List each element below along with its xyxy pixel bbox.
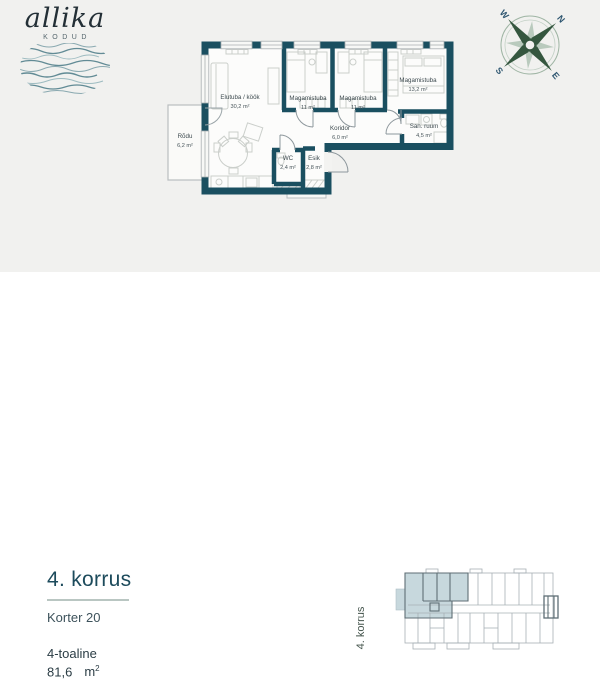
room-label-rodu: Rõdu xyxy=(178,133,193,140)
floorplan-drawing: Elutuba / köök 30,2 m² Magamistuba 11 m²… xyxy=(150,28,470,210)
room-label-elutuba: Elutuba / köök xyxy=(220,94,260,101)
title-divider xyxy=(47,599,129,601)
room-label-koridor: Koridor xyxy=(330,125,350,132)
room-area-magamistuba3: 13,2 m² xyxy=(409,87,428,93)
total-area-value: 81,6 xyxy=(47,664,72,679)
room-label-magamistuba1: Magamistuba xyxy=(289,95,327,102)
compass-label-s: S xyxy=(494,65,506,76)
total-area-unit: m xyxy=(84,664,95,679)
compass-label-w: W xyxy=(498,8,511,21)
total-area-sup: 2 xyxy=(95,664,99,673)
compass-label-e: E xyxy=(550,70,562,81)
brand-name: allika xyxy=(10,4,120,34)
compass-icon: N E S W xyxy=(485,0,575,90)
room-label-sanruum: San. ruum xyxy=(410,123,439,130)
room-area-elutuba: 30,2 m² xyxy=(231,104,250,110)
room-area-magamistuba1: 11 m² xyxy=(301,105,315,111)
overview-floor-label: 4. korrus xyxy=(355,597,369,659)
room-area-koridor: 6,0 m² xyxy=(332,135,348,141)
room-area-magamistuba2: 11 m² xyxy=(351,105,365,111)
room-label-wc: WC xyxy=(283,155,294,162)
room-area-wc: 2,4 m² xyxy=(280,165,296,171)
apartment-number: Korter 20 xyxy=(47,610,131,625)
floor-title: 4. korrus xyxy=(47,568,131,592)
plan-sheet: allika KODUD xyxy=(0,0,600,272)
room-area-esik: 2,8 m² xyxy=(306,165,322,171)
room-area-rodu: 6,2 m² xyxy=(177,143,193,149)
room-area-sanruum: 4,5 m² xyxy=(416,133,432,139)
room-label-esik: Esik xyxy=(308,155,321,162)
building-overview xyxy=(350,562,580,670)
waves-icon xyxy=(17,43,113,95)
brand-tagline: KODUD xyxy=(10,34,120,41)
compass-label-n: N xyxy=(555,13,567,24)
room-count-label: 4-toaline xyxy=(47,646,131,661)
brand-logo: allika KODUD xyxy=(10,4,120,100)
room-label-magamistuba2: Magamistuba xyxy=(339,95,377,102)
details-panel: 4. korrus Korter 20 4-toaline 81,6m2 xyxy=(0,272,600,400)
total-area: 81,6m2 xyxy=(47,664,131,679)
room-label-magamistuba3: Magamistuba xyxy=(399,77,437,84)
apartment-details: 4. korrus Korter 20 4-toaline 81,6m2 xyxy=(47,568,131,679)
